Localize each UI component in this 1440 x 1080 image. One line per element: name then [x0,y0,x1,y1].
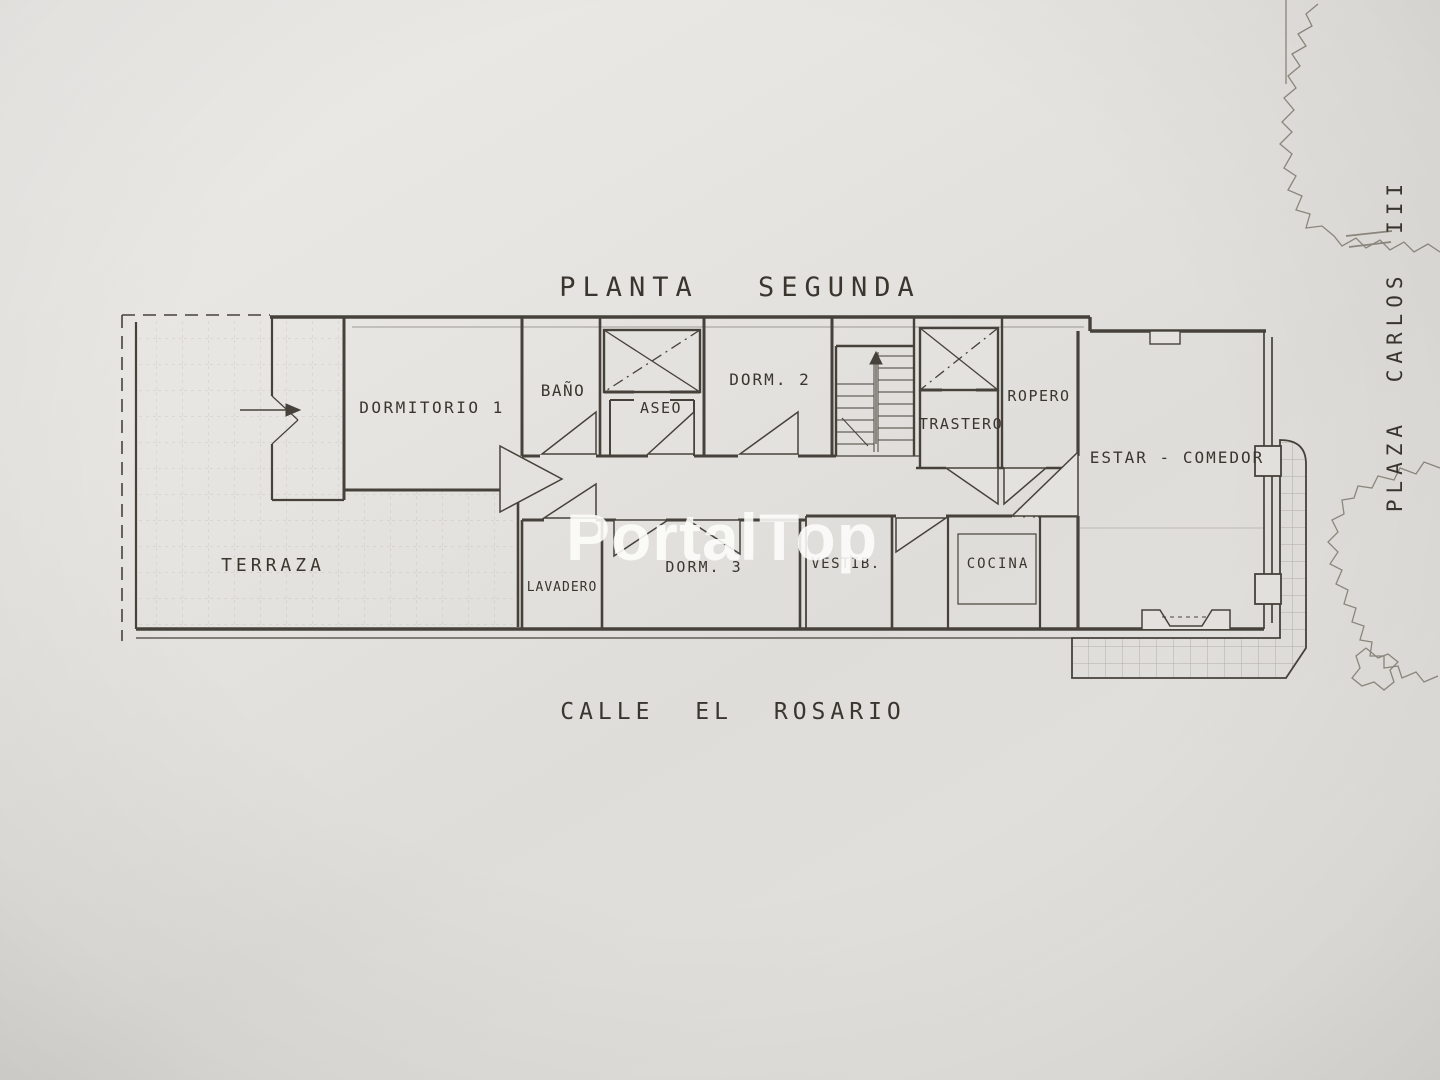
door-cocina-passage [896,518,946,552]
room-label-dorm2: DORM. 2 [729,370,810,389]
stair-walls [836,317,914,456]
room-label-terraza: TERRAZA [221,555,325,576]
door-trastero [946,468,998,504]
stair-arrow-head [870,352,882,364]
door-dorm3-left [614,520,668,556]
street-label-bottom: CALLE EL ROSARIO [560,699,906,725]
street-label-right: PLAZA CARLOS III [1383,178,1407,512]
tree-shrub [1352,648,1398,690]
room-label-estar-comedor: ESTAR - COMEDOR [1090,448,1265,467]
door-aseo [648,412,694,454]
room-label-trastero: TRASTERO [919,415,1003,433]
room-label-vestibulo: VESTIB. [811,556,881,572]
door-bano [542,412,596,454]
stair-treads-left [836,384,874,444]
room-label-dormitorio1: DORMITORIO 1 [359,398,505,417]
door-dorm2 [740,412,798,454]
room-label-dorm3: DORM. 3 [665,558,742,576]
wall-top-jog [1090,317,1266,331]
tiled-areas [138,318,1306,678]
terraza-tiles [138,318,518,627]
wall-top-notch [1150,331,1180,344]
room-label-ropero: ROPERO [1007,387,1070,405]
photo-of-floorplan: PLANTA SEGUNDA DORMITORIO 1 BAÑO ASEO DO… [0,0,1440,1080]
plan-title: PLANTA SEGUNDA [559,272,921,303]
door-dorm3-right [688,520,740,554]
door-lavadero [544,484,596,518]
tree-canopy-top-right [1280,4,1440,252]
room-label-lavadero: LAVADERO [527,580,598,595]
room-label-aseo: ASEO [640,399,682,417]
stair-treads-right [878,356,914,440]
room-label-bano: BAÑO [541,381,586,400]
room-label-cocina: COCINA [967,556,1030,572]
floorplan-svg: PLANTA SEGUNDA DORMITORIO 1 BAÑO ASEO DO… [0,0,1440,1080]
glazing-mullion-lower [1255,574,1281,604]
estar-bay-window [1142,610,1230,629]
